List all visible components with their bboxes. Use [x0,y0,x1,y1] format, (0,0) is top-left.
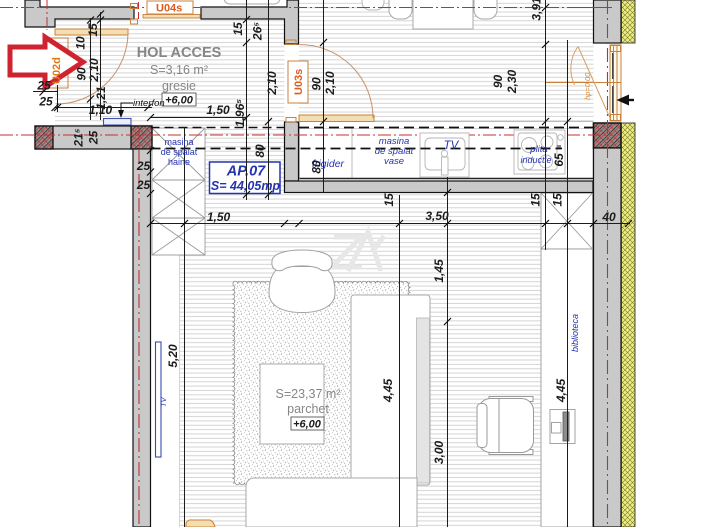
svg-text:hp=0,00: hp=0,00 [583,72,592,100]
svg-text:25: 25 [136,159,151,173]
svg-text:3,50: 3,50 [425,209,449,223]
svg-text:U02d: U02d [51,57,63,84]
svg-text:4,45: 4,45 [554,378,568,403]
svg-text:1,50: 1,50 [207,210,231,224]
svg-text:21⁵: 21⁵ [72,128,86,147]
svg-text:masina: masina [164,137,193,147]
svg-text:1,50: 1,50 [206,103,230,117]
svg-text:plita: plita [529,144,547,155]
svg-text:15: 15 [529,193,543,207]
svg-text:+6,00: +6,00 [293,419,322,431]
svg-text:15: 15 [86,23,100,37]
svg-text:90: 90 [310,77,324,91]
svg-text:de spalat: de spalat [161,147,198,157]
svg-text:U04s: U04s [156,3,182,15]
svg-text:inductie: inductie [520,155,551,165]
svg-text:65: 65 [552,153,566,167]
svg-text:25: 25 [38,95,53,109]
svg-text:parchet: parchet [287,402,329,416]
svg-text:2,10: 2,10 [87,58,101,83]
svg-text:AP.07: AP.07 [226,164,266,180]
svg-text:1,21: 1,21 [94,86,108,110]
svg-text:80: 80 [310,160,324,174]
svg-text:TV: TV [444,140,460,152]
svg-text:4,45: 4,45 [381,378,395,403]
svg-text:90: 90 [491,75,505,89]
svg-text:2,30: 2,30 [505,69,519,94]
svg-text:S=23,37 m²: S=23,37 m² [276,387,341,401]
svg-text:2,10: 2,10 [323,71,337,96]
svg-text:15: 15 [382,193,396,207]
svg-text:26⁵: 26⁵ [251,22,265,41]
svg-text:S=3,16 m²: S=3,16 m² [150,63,208,77]
svg-text:3,00: 3,00 [432,440,446,464]
svg-text:HOL ACCES: HOL ACCES [137,45,222,61]
svg-text:40: 40 [601,210,616,224]
svg-text:biblioteca: biblioteca [570,314,580,352]
svg-text:1,96⁵: 1,96⁵ [233,99,247,127]
svg-text:10: 10 [74,36,88,50]
svg-text:80: 80 [253,144,267,158]
svg-text:haine: haine [168,157,190,167]
svg-text:+6,00: +6,00 [165,95,194,107]
svg-text:2,10: 2,10 [265,71,279,96]
svg-text:S= 44,05mp: S= 44,05mp [211,179,281,193]
svg-text:25: 25 [36,79,51,93]
svg-text:5,20: 5,20 [166,344,180,368]
svg-text:15: 15 [551,193,565,207]
svg-text:25: 25 [136,178,151,192]
svg-text:1,45: 1,45 [432,259,446,283]
svg-text:gresie: gresie [162,79,196,93]
svg-text:U03s: U03s [293,69,305,95]
svg-text:3,91: 3,91 [530,0,544,21]
svg-text:interfon: interfon [133,98,165,109]
svg-text:15: 15 [231,22,245,36]
svg-text:vase: vase [384,156,404,167]
svg-text:25: 25 [87,131,101,146]
svg-text:TV: TV [159,396,168,407]
